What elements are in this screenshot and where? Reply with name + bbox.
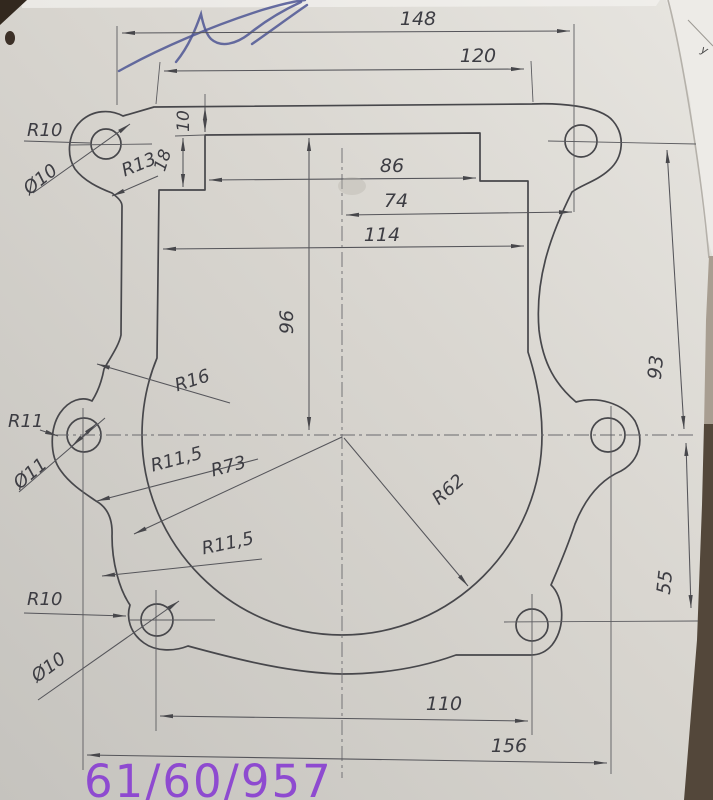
dim-120: 120: [460, 45, 496, 67]
dim-148: 148: [400, 8, 436, 30]
dim-86: 86: [380, 155, 404, 177]
dim-74: 74: [384, 190, 408, 212]
drawing-canvas: у: [0, 0, 713, 800]
photographed-technical-drawing: у: [0, 0, 713, 800]
dim-96: 96: [276, 310, 298, 334]
label-r11: R11: [8, 411, 43, 432]
paper-smudge: [338, 177, 366, 195]
paper-sheet: [0, 0, 713, 800]
table-spot: [5, 31, 15, 45]
handwritten-title: 61/60/957: [84, 755, 333, 800]
dim-114: 114: [364, 224, 400, 246]
dim-55: 55: [653, 569, 677, 595]
dim-156: 156: [491, 735, 527, 757]
dim-93: 93: [644, 354, 668, 380]
label-r10-bottom: R10: [27, 589, 62, 610]
dim-10: 10: [174, 110, 194, 132]
label-r10-top: R10: [27, 120, 62, 141]
dim-110: 110: [426, 693, 462, 715]
